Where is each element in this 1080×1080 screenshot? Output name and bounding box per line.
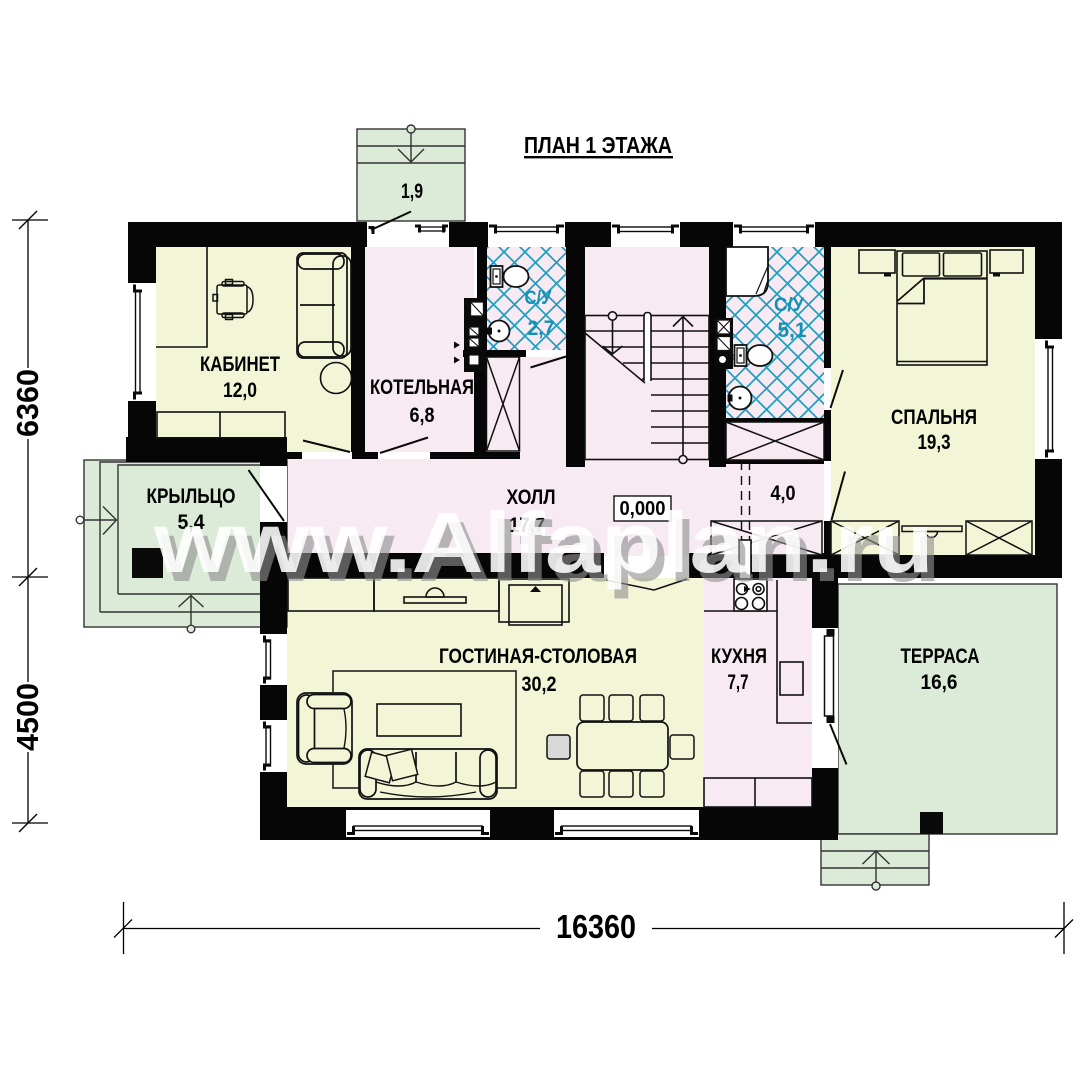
svg-text:ПЛАН 1 ЭТАЖА: ПЛАН 1 ЭТАЖА bbox=[524, 132, 672, 158]
svg-text:4500: 4500 bbox=[10, 683, 45, 751]
svg-text:16,6: 16,6 bbox=[921, 671, 958, 694]
svg-text:С/У: С/У bbox=[525, 288, 552, 309]
svg-text:www.Alfaplan.ru: www.Alfaplan.ru bbox=[153, 496, 934, 591]
svg-text:КОТЕЛЬНАЯ: КОТЕЛЬНАЯ bbox=[370, 376, 474, 399]
svg-text:6360: 6360 bbox=[10, 369, 45, 437]
svg-text:СПАЛЬНЯ: СПАЛЬНЯ bbox=[891, 406, 977, 429]
svg-text:ГОСТИНАЯ-СТОЛОВАЯ: ГОСТИНАЯ-СТОЛОВАЯ bbox=[439, 645, 637, 668]
svg-text:ТЕРРАСА: ТЕРРАСА bbox=[901, 645, 980, 668]
svg-text:2,7: 2,7 bbox=[528, 317, 555, 340]
svg-text:С/У: С/У bbox=[774, 295, 804, 316]
svg-text:30,2: 30,2 bbox=[522, 673, 557, 696]
svg-text:19,3: 19,3 bbox=[918, 431, 951, 454]
svg-text:12,0: 12,0 bbox=[223, 379, 257, 402]
svg-text:1,9: 1,9 bbox=[401, 180, 423, 203]
svg-text:16360: 16360 bbox=[556, 908, 636, 945]
svg-text:5,1: 5,1 bbox=[778, 319, 807, 342]
svg-text:КУХНЯ: КУХНЯ bbox=[711, 645, 767, 668]
svg-text:КАБИНЕТ: КАБИНЕТ bbox=[200, 353, 280, 376]
svg-text:6,8: 6,8 bbox=[410, 404, 435, 427]
svg-text:7,7: 7,7 bbox=[728, 671, 749, 694]
